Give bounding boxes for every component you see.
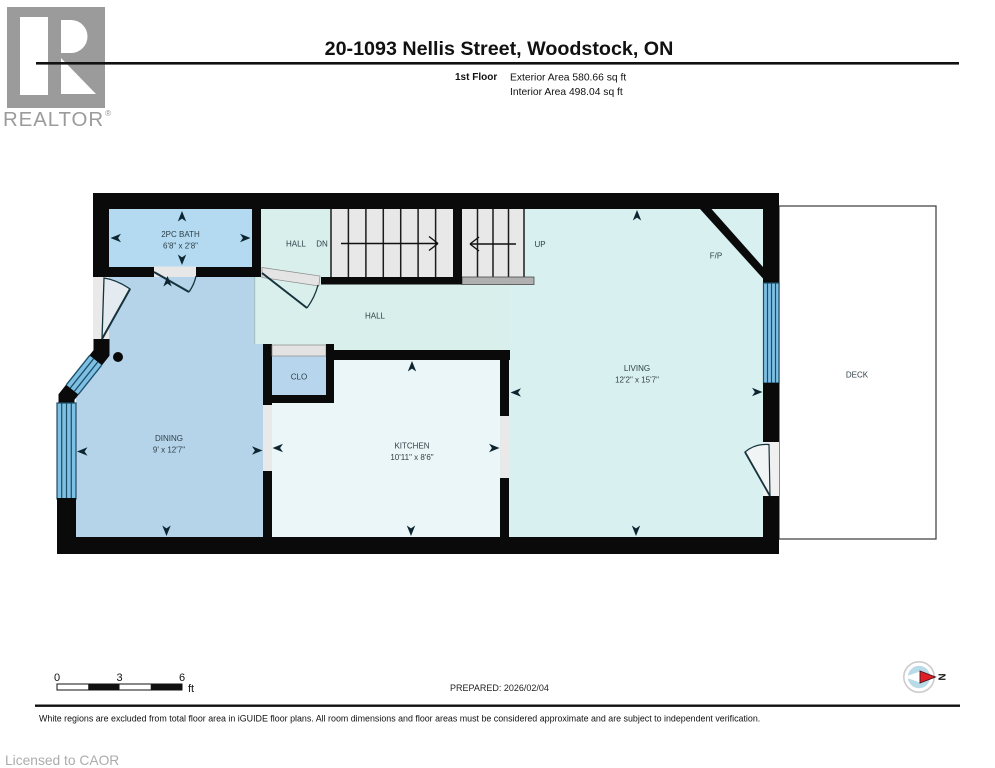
svg-text:PREPARED: 2026/02/04: PREPARED: 2026/02/04 [450,683,549,693]
svg-text:0: 0 [54,672,60,684]
svg-text:N: N [935,673,946,680]
svg-text:9' x 12'7": 9' x 12'7" [153,446,185,455]
svg-text:Interior Area 498.04 sq ft: Interior Area 498.04 sq ft [510,87,623,98]
svg-text:DECK: DECK [846,371,869,380]
svg-text:1st Floor: 1st Floor [455,72,497,83]
svg-text:LIVING: LIVING [624,364,650,373]
svg-text:DINING: DINING [155,434,183,443]
svg-text:ft: ft [188,683,194,695]
svg-text:HALL: HALL [365,312,386,321]
svg-text:CLO: CLO [291,373,307,382]
svg-text:20-1093 Nellis Street, Woodsto: 20-1093 Nellis Street, Woodstock, ON [325,38,674,60]
svg-text:UP: UP [534,240,545,249]
svg-text:White regions are excluded fro: White regions are excluded from total fl… [39,714,760,724]
svg-text:REALTOR: REALTOR [3,109,104,131]
svg-text:Exterior Area 580.66 sq ft: Exterior Area 580.66 sq ft [510,73,626,84]
svg-text:F/P: F/P [710,252,722,261]
svg-text:HALL: HALL [286,240,307,249]
svg-text:2PC BATH: 2PC BATH [161,230,200,239]
svg-text:DN: DN [316,240,328,249]
svg-text:10'11" x 8'6": 10'11" x 8'6" [390,453,433,462]
svg-text:3: 3 [116,672,122,684]
svg-text:Licensed to CAOR: Licensed to CAOR [5,753,119,768]
svg-text:KITCHEN: KITCHEN [394,442,429,451]
svg-text:12'2" x 15'7": 12'2" x 15'7" [615,376,659,385]
svg-text:6: 6 [179,672,185,684]
svg-text:6'8" x 2'8": 6'8" x 2'8" [163,242,198,251]
svg-text:®: ® [105,108,112,118]
